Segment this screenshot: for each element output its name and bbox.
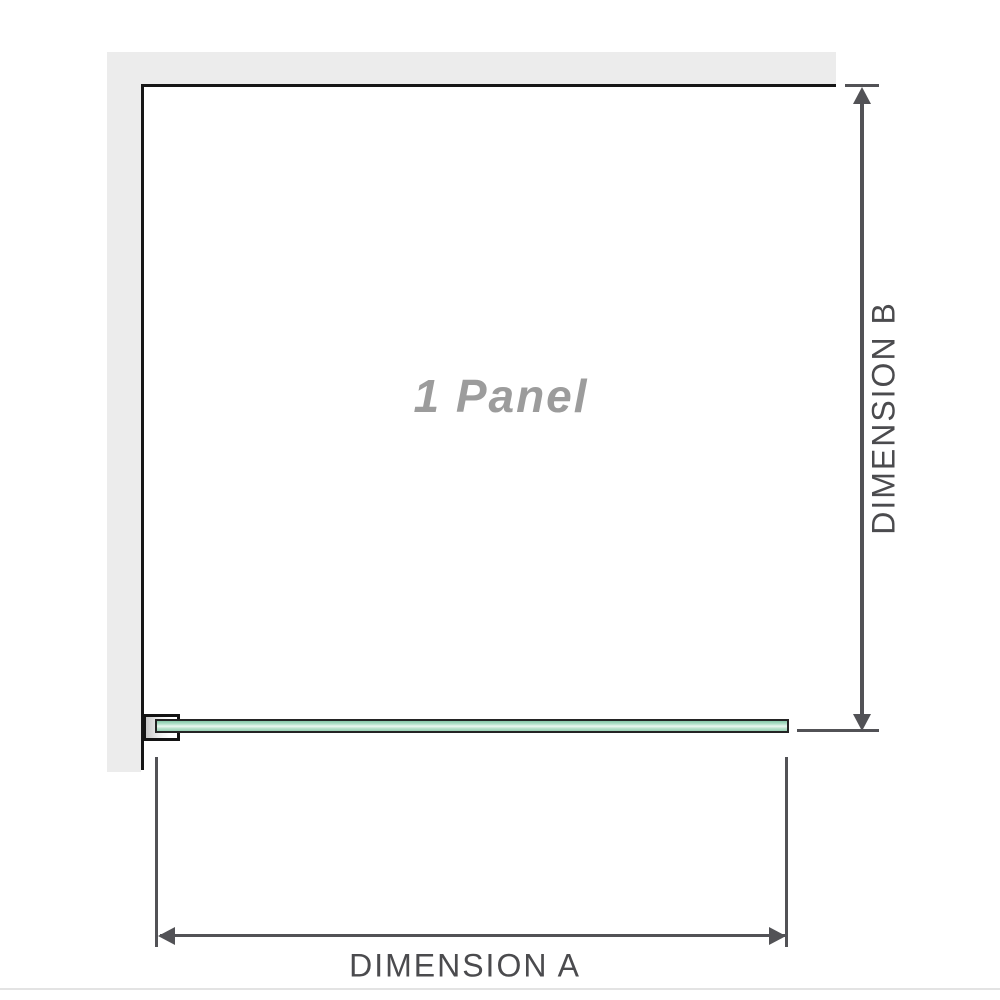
dimension-a-extension-right bbox=[785, 757, 788, 947]
wall-left-strip bbox=[107, 52, 141, 772]
panel-dimension-diagram: 1 Panel DIMENSION B DIMENSION A bbox=[0, 0, 1000, 1000]
wall-inner-edge-left bbox=[141, 84, 144, 770]
wall-top-strip bbox=[107, 52, 836, 84]
dimension-b-line bbox=[860, 96, 864, 723]
wall-inner-edge-top bbox=[141, 84, 836, 87]
dimension-a-extension-left bbox=[155, 757, 158, 947]
arrow-right-icon bbox=[769, 927, 786, 945]
dimension-b-label: DIMENSION B bbox=[866, 301, 903, 535]
page-baseline-divider bbox=[0, 988, 1000, 990]
dimension-a-label: DIMENSION A bbox=[349, 948, 581, 985]
panel-count-label: 1 Panel bbox=[413, 369, 588, 423]
arrow-down-icon bbox=[853, 714, 871, 731]
arrow-left-icon bbox=[158, 927, 175, 945]
glass-panel bbox=[155, 719, 789, 733]
arrow-up-icon bbox=[853, 87, 871, 104]
dimension-a-line bbox=[160, 934, 785, 937]
